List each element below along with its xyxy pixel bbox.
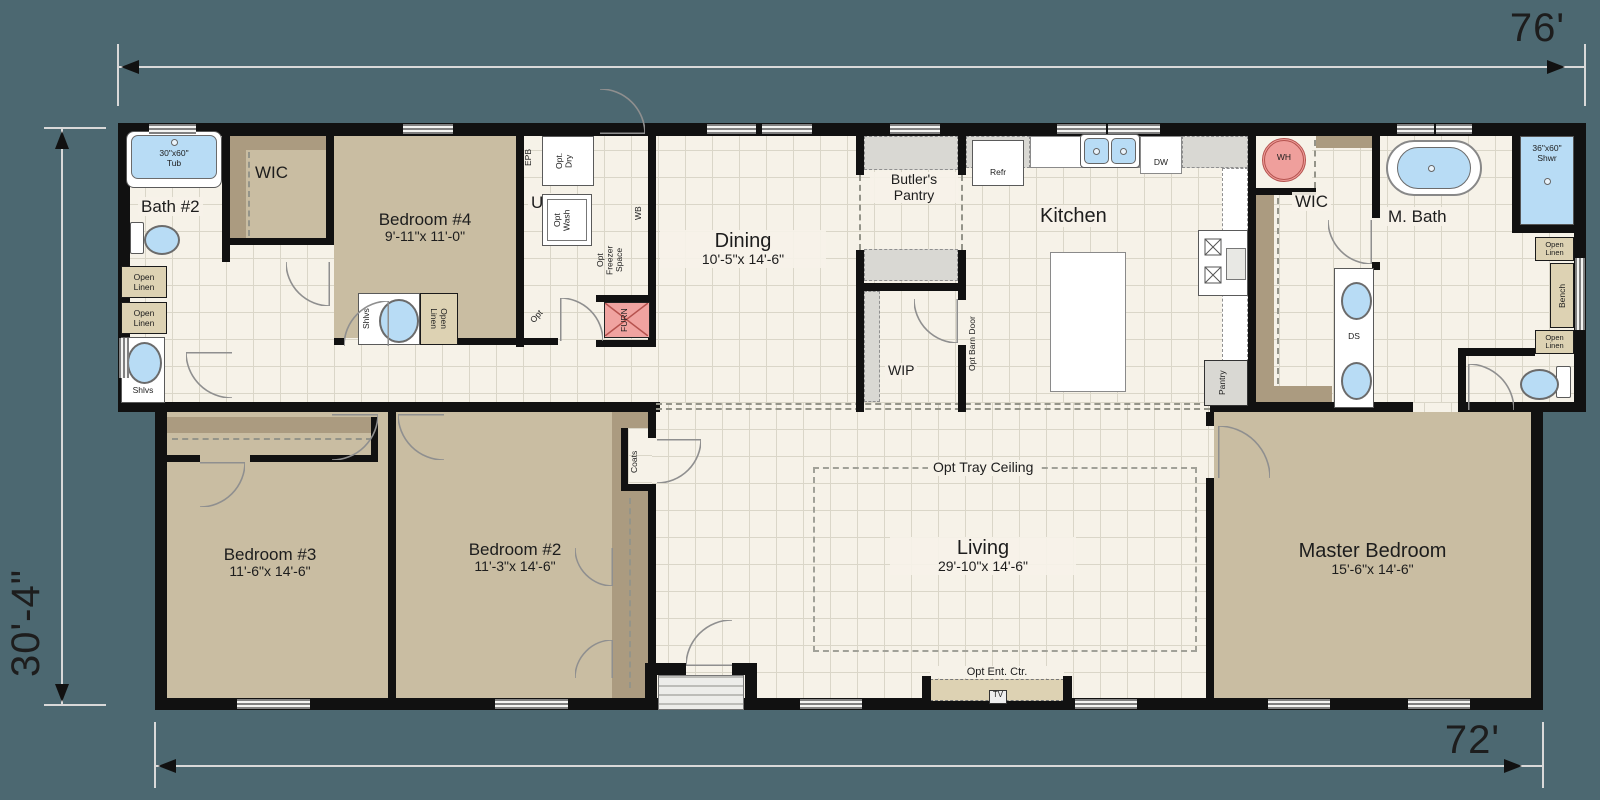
burner-icon-2: [1204, 266, 1222, 284]
dim-bottom-line: [155, 765, 1543, 767]
dim-bottom-tick-right: [1542, 722, 1544, 788]
bedroom2-closet-dash: [629, 498, 631, 688]
room-bedroom3-label: Bedroom #3 11'-6"x 14'-6": [185, 545, 355, 580]
window: [149, 124, 196, 134]
ent-ctr-post-right: [1063, 676, 1072, 702]
toilet-tank-bath2: [130, 222, 144, 254]
door-arc-utility: [560, 298, 603, 341]
opening-header-dash-2: [656, 408, 1210, 410]
window: [1397, 124, 1434, 134]
window: [1575, 258, 1585, 330]
wall-left-lower: [155, 402, 167, 710]
furnace-label: FURN: [620, 303, 630, 337]
wic-master-band-bottom: [1256, 386, 1332, 402]
window: [1075, 699, 1137, 709]
dishwasher-label: DW: [1142, 158, 1180, 168]
wall-shower-bottom: [1512, 225, 1586, 233]
opening-header-dash-1: [656, 403, 1210, 405]
dishwasher-box: [1140, 136, 1182, 174]
dim-top-tick-left: [117, 44, 119, 106]
door-arc-coats: [657, 439, 701, 483]
open-linen-box-4: OpenLinen: [1535, 237, 1574, 261]
door-arc-front-entry: [686, 620, 732, 666]
dim-left-tick-bottom: [44, 704, 106, 706]
dim-bottom-tick-left: [154, 722, 156, 788]
wall-entry-post-left: [645, 663, 657, 710]
door-arc-bed2-closet-upper: [575, 548, 613, 586]
dim-top-tick-right: [1584, 44, 1586, 106]
coats-label: Coats: [630, 440, 640, 484]
vanity-bath2-shlvs-label: Shlvs: [123, 386, 163, 396]
entry-steps: [658, 675, 744, 710]
dim-top-arrow-left: [121, 60, 139, 74]
wall-wip-divider: [856, 283, 966, 291]
kitchen-island: [1050, 252, 1126, 392]
bedroom3-closet-wall-a: [167, 455, 200, 462]
window: [890, 124, 940, 134]
butlers-counter-top: [864, 136, 958, 170]
wall-dining-butlers-b: [856, 250, 864, 412]
wall-toilet-nook-left: [1458, 348, 1466, 412]
dim-bottom-arrow-right: [1504, 759, 1522, 773]
dim-top-line: [118, 66, 1586, 68]
vanity-bath2-sink: [127, 342, 162, 384]
shower-label: 36"x60"Shwr: [1520, 144, 1574, 163]
dryer-label: Opt.Dry: [555, 142, 574, 180]
wall-furn-closet-bottom: [596, 340, 656, 347]
window: [762, 124, 812, 134]
mbath-tub-drain: [1428, 165, 1435, 172]
dim-left-arrow-up: [55, 131, 69, 149]
refrigerator-box: [972, 140, 1024, 186]
barn-door-label: Opt Barn Door: [968, 308, 978, 380]
wall-wic-master-right-a: [1372, 123, 1380, 218]
vanity-ds-sink-top: [1341, 282, 1372, 320]
open-linen-box-3: OpenLinen: [420, 293, 458, 345]
wall-butlers-kitchen-a: [958, 123, 966, 175]
window: [119, 338, 129, 378]
dim-bottom-arrow-left: [158, 759, 176, 773]
wic-master-band-left: [1256, 195, 1274, 402]
window: [495, 699, 568, 709]
room-mbath-label: M. Bath: [1385, 207, 1450, 226]
room-bedroom4-label: Bedroom #4 9'-11"x 11'-0": [345, 210, 505, 245]
wic-left-shelf-dash: [248, 152, 250, 236]
door-arc-wic-master: [1328, 220, 1372, 264]
sink-drain-right: [1120, 148, 1127, 155]
dim-left-tick-top: [44, 127, 106, 129]
dim-left-line: [61, 128, 63, 706]
wall-dining-butlers-a: [856, 123, 864, 175]
window: [707, 124, 756, 134]
window: [403, 124, 453, 134]
epb-label: EPB: [524, 140, 534, 174]
room-master-label: Master Bedroom 15'-6"x 14'-6": [1280, 540, 1465, 578]
door-arc-bedroom3-closet: [200, 462, 245, 507]
wall-butlers-kitchen-c: [958, 345, 966, 412]
burner-icon-1: [1204, 238, 1222, 256]
wall-living-master-a: [1206, 412, 1214, 426]
wall-right-lower: [1531, 402, 1543, 710]
wall-bed2-living-a: [648, 412, 656, 438]
window: [1436, 124, 1472, 134]
wall-top: [118, 123, 1586, 136]
door-arc-bedroom4: [344, 301, 389, 346]
tray-ceiling-label: Opt Tray Ceiling: [928, 460, 1038, 476]
window: [1108, 124, 1160, 134]
water-heater-label: WH: [1262, 153, 1306, 163]
door-arc-master-entry: [1218, 426, 1270, 478]
wall-toilet-nook-top: [1466, 348, 1535, 356]
vanity-ds-label: DS: [1340, 332, 1368, 342]
wic-master-dash: [1277, 198, 1279, 384]
room-wic-left-label: WIC: [255, 163, 288, 182]
wic-master-band-top: [1316, 136, 1372, 148]
door-arc-bedroom2-entry: [398, 414, 444, 460]
floor-plan: Coats 30"x60"T: [0, 0, 1600, 800]
wall-utility-bottom-stub: [524, 338, 558, 345]
dim-top-arrow-right: [1547, 60, 1565, 74]
room-wip-label: WIP: [885, 363, 917, 379]
door-arc-bath2-hall: [186, 352, 232, 398]
bench-box: Bench: [1550, 263, 1574, 328]
refrigerator-label: Refr: [974, 168, 1022, 178]
range-body: [1226, 248, 1246, 280]
sink-drain-left: [1093, 148, 1100, 155]
toilet-bowl-mbath: [1520, 369, 1559, 400]
door-arc-back-door: [600, 89, 645, 134]
room-wic-master-label: WIC: [1292, 192, 1331, 211]
room-kitchen-label: Kitchen: [1037, 205, 1110, 227]
dim-left-label: 30'-4": [4, 548, 49, 698]
door-arc-wic-left: [286, 262, 330, 306]
window: [800, 699, 862, 709]
door-arc-bedroom3-entry: [332, 414, 378, 460]
wall-mid-left: [118, 402, 660, 412]
wall-bedroom4-bottom-a: [334, 338, 344, 345]
kitchen-counter-corner: [1182, 136, 1248, 168]
dim-left-arrow-down: [55, 684, 69, 702]
open-linen-box-1: OpenLinen: [121, 266, 167, 298]
pantry-label: Pantry: [1218, 364, 1228, 402]
wall-butlers-kitchen-b: [958, 250, 966, 300]
room-dining-label: Dining 10'-5"x 14'-6": [660, 230, 826, 268]
dim-top-label: 76': [1425, 6, 1565, 51]
shower-drain: [1544, 178, 1551, 185]
dim-bottom-label: 72': [1360, 718, 1500, 763]
wall-wic-left-bottom: [222, 238, 334, 245]
coats-closet-wall-left: [621, 428, 628, 491]
wall-kitchen-right: [1248, 123, 1256, 412]
wall-wic-left-right: [326, 123, 334, 245]
butlers-opening-dash-right: [961, 175, 963, 250]
tray-ceiling-outline: [813, 467, 1197, 652]
ent-ctr-post-left: [922, 676, 931, 702]
opt-freezer-label: OptFreezerSpace: [596, 232, 625, 288]
door-arc-wip-barn: [914, 299, 958, 343]
open-linen-box-5: OpenLinen: [1535, 330, 1574, 354]
window: [1057, 124, 1106, 134]
wic-left-shelf-band-side: [230, 136, 246, 238]
wall-bed3-bed2: [388, 412, 396, 698]
tub-faucet-dot: [171, 139, 178, 146]
wb-label: WB: [634, 198, 644, 228]
washer-label: OptWash: [553, 202, 572, 238]
window: [1268, 699, 1330, 709]
open-linen-box-2: OpenLinen: [121, 302, 167, 334]
door-arc-mbath-master: [1468, 364, 1514, 410]
butlers-opening-dash-left: [859, 175, 861, 250]
window: [1408, 699, 1470, 709]
wall-entry-post-right: [745, 663, 757, 710]
room-bath2-label: Bath #2: [138, 197, 203, 216]
window: [237, 699, 310, 709]
wall-furn-closet-top: [596, 295, 656, 302]
wall-living-master-b: [1206, 478, 1214, 698]
ent-ctr-label: Opt Ent. Ctr.: [930, 666, 1064, 678]
wip-shelf-strip: [864, 291, 880, 402]
vanity-ds-sink-bottom: [1341, 362, 1372, 400]
toilet-bowl-bath2: [144, 225, 180, 255]
wall-shower-left: [1512, 123, 1520, 228]
room-butlers-label: Butler'sPantry: [870, 172, 958, 203]
butlers-counter-bottom: [864, 249, 958, 281]
door-arc-bed2-closet-lower: [575, 640, 613, 678]
tub-label: 30"x60"Tub: [131, 149, 217, 168]
tv-label: TV: [989, 691, 1007, 700]
